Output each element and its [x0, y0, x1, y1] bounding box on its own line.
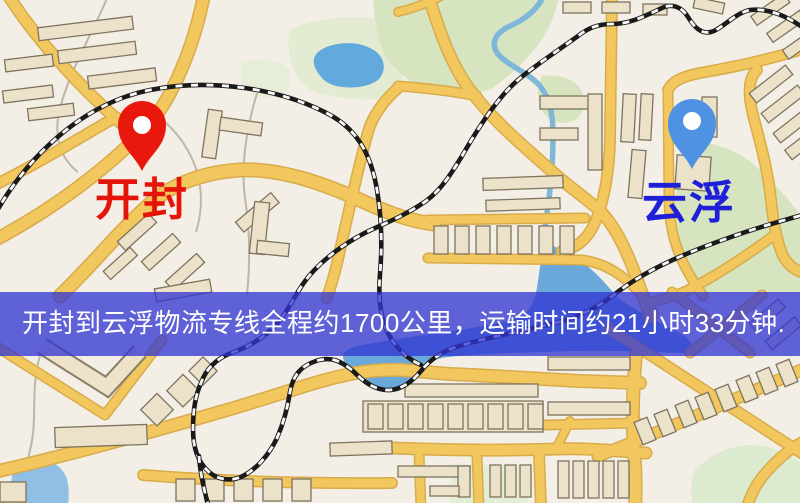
logistics-route-map-image: 开封 云浮 开封到云浮物流专线全程约1700公里，运输时间约21小时33分钟.	[0, 0, 800, 503]
red-location-pin-icon	[118, 101, 166, 171]
route-info-banner: 开封到云浮物流专线全程约1700公里，运输时间约21小时33分钟.	[0, 292, 800, 356]
map-canvas	[0, 0, 800, 503]
origin-city-label: 开封	[95, 177, 189, 222]
route-info-text: 开封到云浮物流专线全程约1700公里，运输时间约21小时33分钟.	[22, 309, 785, 339]
destination-city-label: 云浮	[642, 180, 736, 225]
